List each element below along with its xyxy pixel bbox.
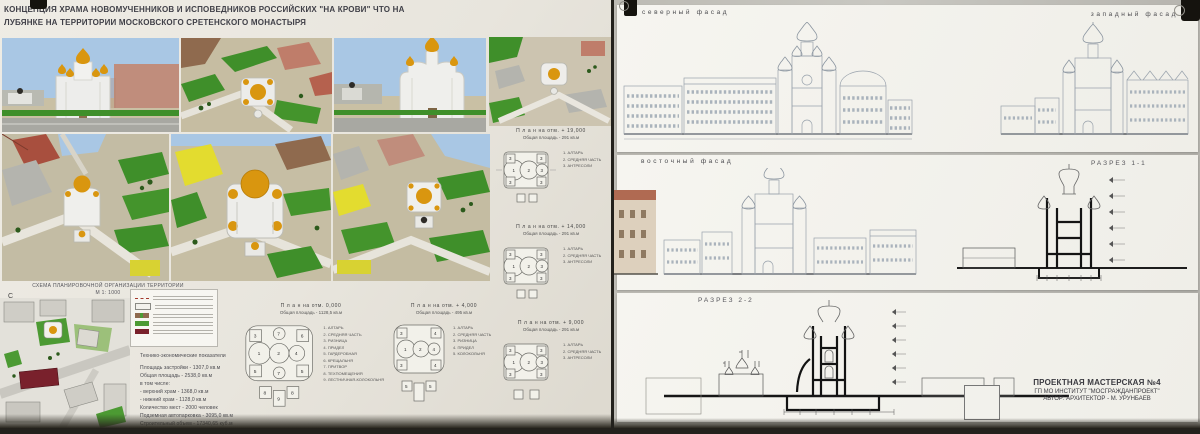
render-front-right-view [334, 38, 486, 132]
legend-row [135, 303, 213, 310]
right-board: северный фасад западный фасад восточный … [614, 0, 1200, 428]
site-plan-map [0, 298, 130, 428]
plan-title: П л а н на отм. + 14,000 [492, 224, 610, 230]
svg-text:3: 3 [400, 331, 403, 336]
floor-plan-drawing: 124 77 3655 889 [238, 317, 320, 417]
svg-text:4: 4 [434, 363, 437, 368]
presentation-board-photo: КОНЦЕПЦИЯ ХРАМА НОВОМУЧЕННИКОВ И ИСПОВЕД… [0, 0, 1200, 434]
svg-text:5: 5 [254, 369, 257, 375]
plan-legend-item: 3. АНТРЕСОЛИ [563, 163, 601, 170]
render-front-view [2, 38, 179, 132]
floor-plan-4000: П л а н на отм. + 4,000 Общая площадь - … [388, 303, 500, 413]
indicator-row: Площадь застройки - 1307,0 кв.м [140, 364, 248, 372]
floor-plan-9000: П л а н на отм. + 9,000 Общая площадь - … [492, 320, 610, 410]
church-symbol [135, 313, 149, 318]
plan-area: Общая площадь - 495 кв.м [388, 310, 500, 315]
svg-text:1: 1 [258, 351, 261, 357]
clip-ring-icon [619, 1, 629, 11]
svg-text:2: 2 [277, 351, 280, 357]
floor-plan-19000: П л а н на отм. + 19,000 Общая площадь -… [492, 128, 610, 212]
binder-clip-icon [30, 0, 47, 9]
board-edge-shadow [0, 414, 611, 428]
indicator-row: Количество мест - 2000 человек [140, 404, 248, 412]
indicator-row: в том числе: [140, 380, 248, 388]
svg-text:3: 3 [400, 363, 403, 368]
indicator-row: Общая площадь - 2538,0 кв.м [140, 372, 248, 380]
floor-plan-0000: П л а н на отм. 0,000 Общая площадь - 11… [238, 303, 384, 417]
west-facade-drawing [999, 22, 1190, 150]
svg-text:6: 6 [301, 334, 304, 340]
plan-area: Общая площадь - 1128,5 кв.м [238, 310, 384, 315]
plan-title: П л а н на отм. + 19,000 [492, 128, 610, 134]
render-aerial-1 [181, 38, 332, 132]
svg-text:7: 7 [277, 332, 280, 338]
section-1-1-drawing [949, 164, 1194, 288]
svg-text:7: 7 [277, 371, 280, 377]
svg-text:2: 2 [419, 347, 422, 352]
clip-ring-icon [1174, 5, 1185, 16]
render-aerial-top [489, 37, 611, 126]
east-facade-label: восточный фасад [641, 158, 733, 165]
binder-clip-icon [1181, 0, 1200, 21]
north-facade-drawing [622, 22, 914, 150]
binder-clip-icon [624, 0, 637, 16]
plan-title: П л а н на отм. + 4,000 [388, 303, 500, 309]
project-title: КОНЦЕПЦИЯ ХРАМА НОВОМУЧЕННИКОВ И ИСПОВЕД… [4, 3, 486, 29]
legend-text-blur [153, 322, 213, 326]
svg-text:8: 8 [263, 390, 266, 396]
svg-text:5: 5 [429, 384, 432, 389]
legend-text-blur [153, 314, 213, 318]
plan-legend: 1. АЛТАРЬ2. СРЕДНЯЯ ЧАСТЬ3. РИЗНИЦА4. ПР… [323, 325, 384, 417]
plan-legend: 1. АЛТАРЬ2. СРЕДНЯЯ ЧАСТЬ3. РИЗНИЦА4. ПР… [453, 325, 491, 413]
floor-plan-14000: П л а н на отм. + 14,000 Общая площадь -… [492, 224, 610, 308]
svg-text:4: 4 [295, 351, 298, 357]
svg-text:4: 4 [433, 347, 436, 352]
north-facade-label: северный фасад [642, 9, 729, 16]
institute-name: ГП МО ИНСТИТУТ "МОСГРАЖДАНПРОЕКТ" [1006, 389, 1188, 395]
render-aerial-2 [2, 134, 169, 281]
plan-legend-item: 9. ЛЕСТНИЧНАЯ-КОЛОКОЛЬНЯ [323, 377, 384, 384]
plan-area: Общая площадь - 291 кв.м [492, 135, 610, 140]
west-facade-label: западный фасад [1091, 11, 1178, 18]
legend-row [135, 321, 213, 326]
legend-row [135, 296, 213, 300]
floor-plan-drawing: 123 3333 [492, 238, 560, 308]
boundary-line-symbol [135, 298, 149, 299]
plan-legend-item: 3. АНТРЕСОЛИ [563, 355, 601, 362]
stamp-box [964, 385, 1000, 420]
legend-text-blur [153, 296, 213, 300]
project-title-line1: КОНЦЕПЦИЯ ХРАМА НОВОМУЧЕННИКОВ И ИСПОВЕД… [4, 3, 486, 16]
render-aerial-4 [333, 134, 490, 281]
credits-block: ПРОЕКТНАЯ МАСТЕРСКАЯ №4 ГП МО ИНСТИТУТ "… [1006, 378, 1188, 402]
legend-text-blur [153, 330, 213, 334]
svg-text:3: 3 [254, 334, 257, 340]
board-edge-shadow [614, 418, 1200, 428]
legend-row [135, 329, 213, 334]
adjacent-building-fragment [614, 176, 660, 288]
project-title-line2: ЛУБЯНКЕ НА ТЕРРИТОРИИ МОСКОВСКОГО СРЕТЕН… [4, 16, 486, 29]
site-plan-legend [130, 289, 218, 347]
east-facade-drawing [662, 168, 918, 288]
svg-text:4: 4 [434, 331, 437, 336]
floor-plan-drawing: 124 3434 55 [388, 317, 450, 413]
indicator-row: - нижний храм - 1128,0 кв.м [140, 396, 248, 404]
section-2-2-drawing [644, 300, 1074, 422]
svg-text:9: 9 [277, 396, 280, 402]
plan-legend: 1. АЛТАРЬ2. СРЕДНЯЯ ЧАСТЬ3. АНТРЕСОЛИ [563, 342, 601, 410]
legend-text-blur [155, 305, 213, 309]
indicator-row: - верхний храм - 1368,0 кв.м [140, 388, 248, 396]
plan-legend-item: 3. АНТРЕСОЛИ [563, 259, 601, 266]
svg-text:5: 5 [405, 384, 408, 389]
indicators-title: Технико-экономические показатели [140, 352, 248, 360]
render-aerial-3 [171, 134, 331, 281]
svg-text:1: 1 [404, 347, 407, 352]
studio-name: ПРОЕКТНАЯ МАСТЕРСКАЯ №4 [1006, 378, 1188, 387]
plan-legend: 1. АЛТАРЬ2. СРЕДНЯЯ ЧАСТЬ3. АНТРЕСОЛИ [563, 246, 601, 308]
plan-legend: 1. АЛТАРЬ2. СРЕДНЯЯ ЧАСТЬ3. АНТРЕСОЛИ [563, 150, 601, 212]
plan-area: Общая площадь - 291 кв.м [492, 327, 610, 332]
plan-area: Общая площадь - 291 кв.м [492, 231, 610, 236]
author-name: АВТОР: АРХИТЕКТОР - М. УРУНБАЕВ [1006, 396, 1188, 402]
plan-title: П л а н на отм. + 9,000 [492, 320, 610, 326]
project-building-symbol [135, 329, 149, 334]
plan-legend-item: 5. КОЛОКОЛЬНЯ [453, 351, 491, 358]
svg-text:8: 8 [291, 390, 294, 396]
left-board: КОНЦЕПЦИЯ ХРАМА НОВОМУЧЕННИКОВ И ИСПОВЕД… [0, 0, 611, 428]
existing-building-symbol [135, 303, 151, 310]
plan-title: П л а н на отм. 0,000 [238, 303, 384, 309]
floor-plan-drawing: 123 3333 [492, 142, 560, 212]
greenery-symbol [135, 321, 149, 326]
floor-plan-drawing: 123 3333 [492, 334, 560, 410]
svg-text:5: 5 [301, 369, 304, 375]
legend-row [135, 313, 213, 318]
